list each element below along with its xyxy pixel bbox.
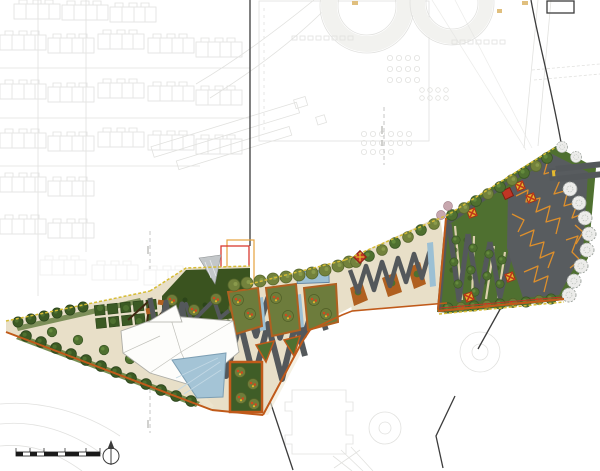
tree-icon xyxy=(280,271,292,283)
tree-icon xyxy=(321,309,332,320)
pink-tree-icon xyxy=(437,211,446,220)
tree-icon xyxy=(469,244,477,252)
north-arrow-icon xyxy=(103,440,119,465)
campus-north xyxy=(150,0,505,175)
building-south xyxy=(285,390,353,454)
tree-icon xyxy=(450,258,458,266)
tree-icon xyxy=(483,272,491,280)
tree-icon xyxy=(469,301,479,311)
tree-icon xyxy=(99,345,109,355)
tree-icon xyxy=(267,273,279,285)
tree-icon xyxy=(377,245,388,256)
tree-icon xyxy=(456,302,465,311)
gray-tree-icon xyxy=(563,182,577,196)
tree-icon xyxy=(293,269,305,281)
masterplan-stage xyxy=(0,0,600,471)
column-grid-circles xyxy=(361,55,448,154)
tree-icon xyxy=(309,295,320,306)
site-plan-canvas xyxy=(0,0,600,471)
tree-icon xyxy=(78,302,88,312)
gray-tree-icon xyxy=(580,243,594,257)
tree-icon xyxy=(236,393,247,404)
tree-icon xyxy=(467,266,475,274)
tree-icon xyxy=(452,236,460,244)
tree-icon xyxy=(495,182,506,193)
tree-icon xyxy=(283,311,294,322)
gray-tree-icon xyxy=(570,151,581,162)
roads-west xyxy=(0,0,334,296)
tree-icon xyxy=(65,305,75,315)
tree-icon xyxy=(228,279,240,291)
tree-icon xyxy=(73,335,83,345)
park xyxy=(6,141,600,415)
tree-icon xyxy=(245,309,256,320)
tree-icon xyxy=(416,225,427,236)
tree-icon xyxy=(249,399,260,410)
tree-icon xyxy=(233,295,244,306)
pink-tree-icon xyxy=(444,202,453,211)
gray-tree-icon xyxy=(562,288,576,302)
tree-icon xyxy=(47,327,57,337)
tree-icon xyxy=(211,294,222,305)
tan-markers xyxy=(352,1,528,13)
tree-icon xyxy=(485,250,493,258)
tree-icon xyxy=(454,280,462,288)
tree-icon xyxy=(189,305,200,316)
gray-tree-icon xyxy=(572,196,586,210)
tree-icon xyxy=(235,367,246,378)
tree-icon xyxy=(403,232,414,243)
gray-tree-icon xyxy=(574,259,588,273)
housing-blocks-west xyxy=(0,0,242,285)
gray-tree-icon xyxy=(582,227,596,241)
tree-icon xyxy=(496,280,504,288)
tree-icon xyxy=(507,175,518,186)
gray-tree-icon xyxy=(578,211,592,225)
scale-bar xyxy=(16,448,100,456)
gray-tree-icon xyxy=(567,274,581,288)
tree-icon xyxy=(306,267,318,279)
gray-tree-icon xyxy=(556,141,567,152)
tree-icon xyxy=(498,256,506,264)
planting-islands xyxy=(228,284,338,336)
tree-icon xyxy=(248,379,259,390)
tree-icon xyxy=(483,189,494,200)
tree-icon xyxy=(271,293,282,304)
roundabouts-south xyxy=(333,332,500,471)
roads-south-west xyxy=(0,403,120,471)
